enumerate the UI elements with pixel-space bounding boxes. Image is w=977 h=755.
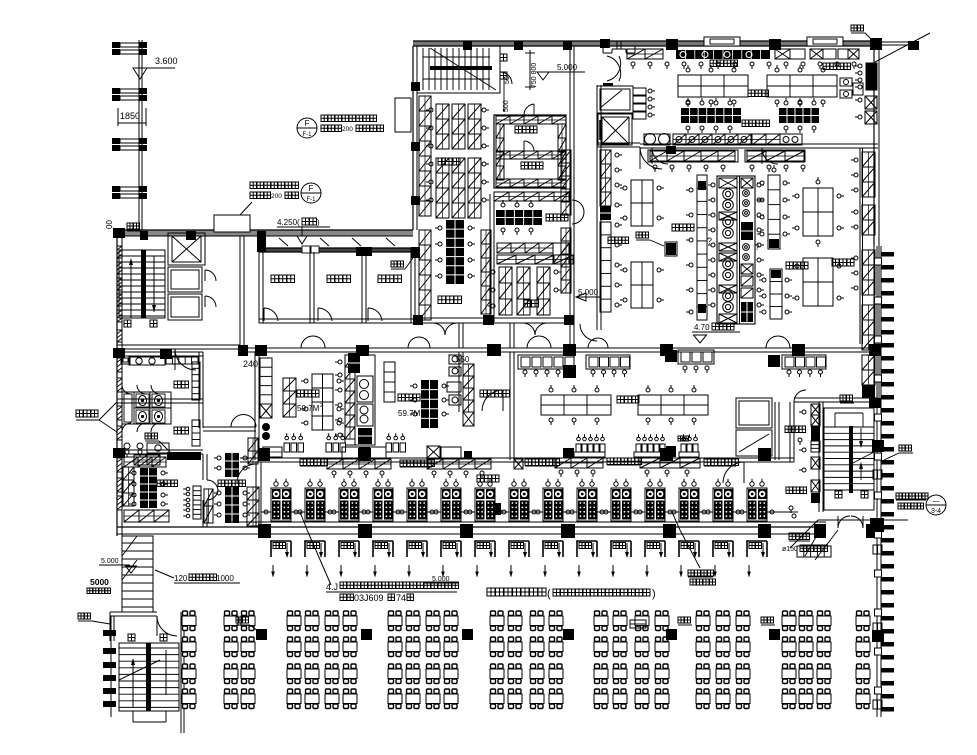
svg-text:4.250(: 4.250(: [277, 218, 300, 227]
svg-text:F: F: [309, 184, 314, 193]
svg-text:5.000: 5.000: [578, 288, 599, 297]
svg-text:50: 50: [504, 76, 511, 84]
svg-text:(: (: [547, 588, 551, 600]
svg-text:2: 2: [320, 403, 323, 409]
svg-text:): ): [317, 218, 320, 227]
svg-text:): ): [652, 588, 656, 600]
svg-text:200: 200: [342, 126, 353, 133]
svg-text:4.70: 4.70: [694, 323, 710, 332]
svg-text:120: 120: [174, 574, 188, 583]
svg-text:03J609: 03J609: [354, 593, 384, 603]
svg-text:F-1: F-1: [307, 197, 317, 203]
svg-text:?: ?: [755, 243, 760, 252]
svg-text:5000: 5000: [90, 577, 109, 587]
svg-text:1000: 1000: [216, 574, 234, 583]
svg-text:3.600: 3.600: [155, 56, 178, 66]
svg-text:200: 200: [271, 193, 282, 200]
svg-text:750 800: 750 800: [531, 63, 538, 88]
svg-text:59.7M: 59.7M: [297, 404, 320, 413]
svg-text:5.000: 5.000: [432, 576, 450, 583]
svg-text:F-1: F-1: [303, 132, 313, 138]
svg-text:00: 00: [105, 220, 114, 229]
svg-text:?: ?: [707, 236, 712, 246]
svg-text:74: 74: [396, 593, 406, 603]
svg-text:59.7M: 59.7M: [398, 409, 421, 418]
svg-text:5.000: 5.000: [101, 558, 119, 565]
svg-text:1850: 1850: [120, 111, 140, 121]
svg-text:3-4: 3-4: [931, 508, 941, 515]
svg-text:ø150: ø150: [782, 546, 798, 553]
svg-text:4.J: 4.J: [326, 582, 338, 592]
svg-text:—: —: [933, 498, 940, 505]
svg-text:F: F: [305, 119, 310, 128]
svg-text:550: 550: [456, 355, 470, 364]
svg-text:240: 240: [243, 359, 258, 369]
